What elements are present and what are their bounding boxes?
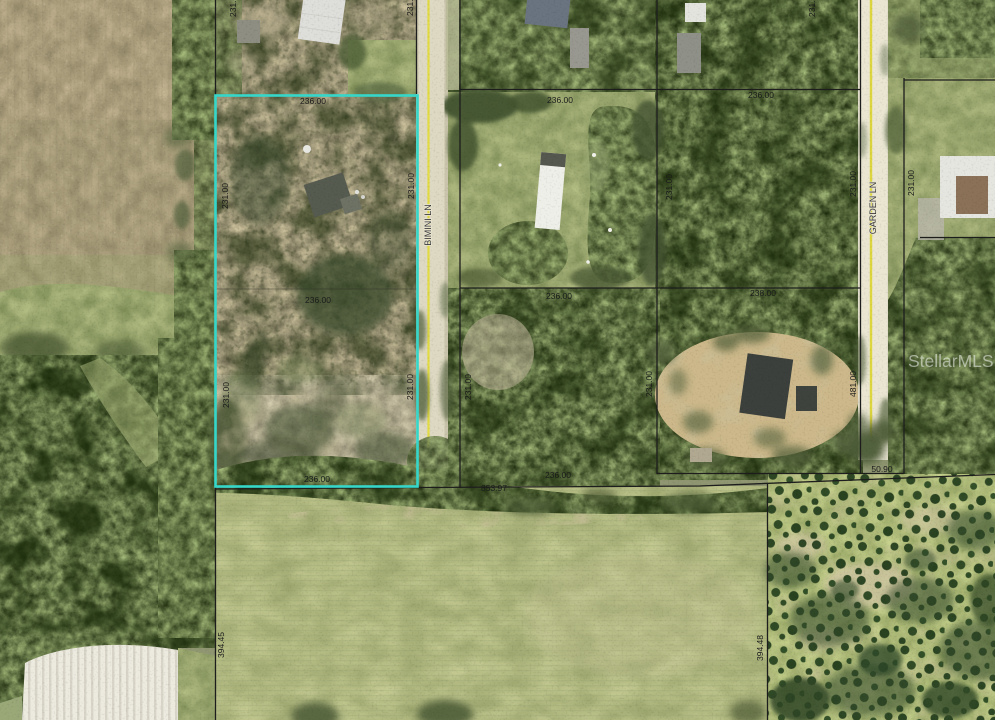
svg-text:BIMINI LN: BIMINI LN — [423, 204, 433, 246]
svg-text:394.48: 394.48 — [755, 635, 765, 661]
svg-text:GARDEN LN: GARDEN LN — [868, 182, 878, 235]
svg-text:StellarMLS: StellarMLS — [908, 351, 994, 371]
svg-text:236.00: 236.00 — [305, 295, 331, 305]
svg-text:231.00: 231.00 — [906, 170, 916, 196]
svg-text:236.00: 236.00 — [300, 96, 326, 106]
svg-text:231.00: 231.00 — [221, 382, 231, 408]
svg-text:238.00: 238.00 — [750, 288, 776, 298]
svg-text:231.00: 231.00 — [405, 374, 415, 400]
svg-text:231.00: 231.00 — [405, 0, 415, 16]
svg-text:231.00: 231.00 — [848, 171, 858, 197]
svg-text:50.90: 50.90 — [871, 464, 893, 474]
svg-text:231.00: 231.00 — [807, 0, 817, 17]
svg-text:236.00: 236.00 — [547, 95, 573, 105]
svg-text:231.00: 231.00 — [463, 374, 473, 400]
svg-text:236.00: 236.00 — [304, 474, 330, 484]
svg-text:236.00: 236.00 — [546, 291, 572, 301]
svg-text:231.00: 231.00 — [228, 0, 238, 17]
svg-text:394.45: 394.45 — [216, 632, 226, 658]
svg-text:481.00: 481.00 — [848, 371, 858, 397]
svg-text:231.00: 231.00 — [664, 174, 674, 200]
svg-text:236.00: 236.00 — [545, 470, 571, 480]
svg-text:231.00: 231.00 — [406, 173, 416, 199]
svg-text:231.00: 231.00 — [220, 183, 230, 209]
svg-text:853.97: 853.97 — [481, 483, 507, 493]
svg-text:236.00: 236.00 — [748, 90, 774, 100]
svg-text:231.00: 231.00 — [644, 371, 654, 397]
